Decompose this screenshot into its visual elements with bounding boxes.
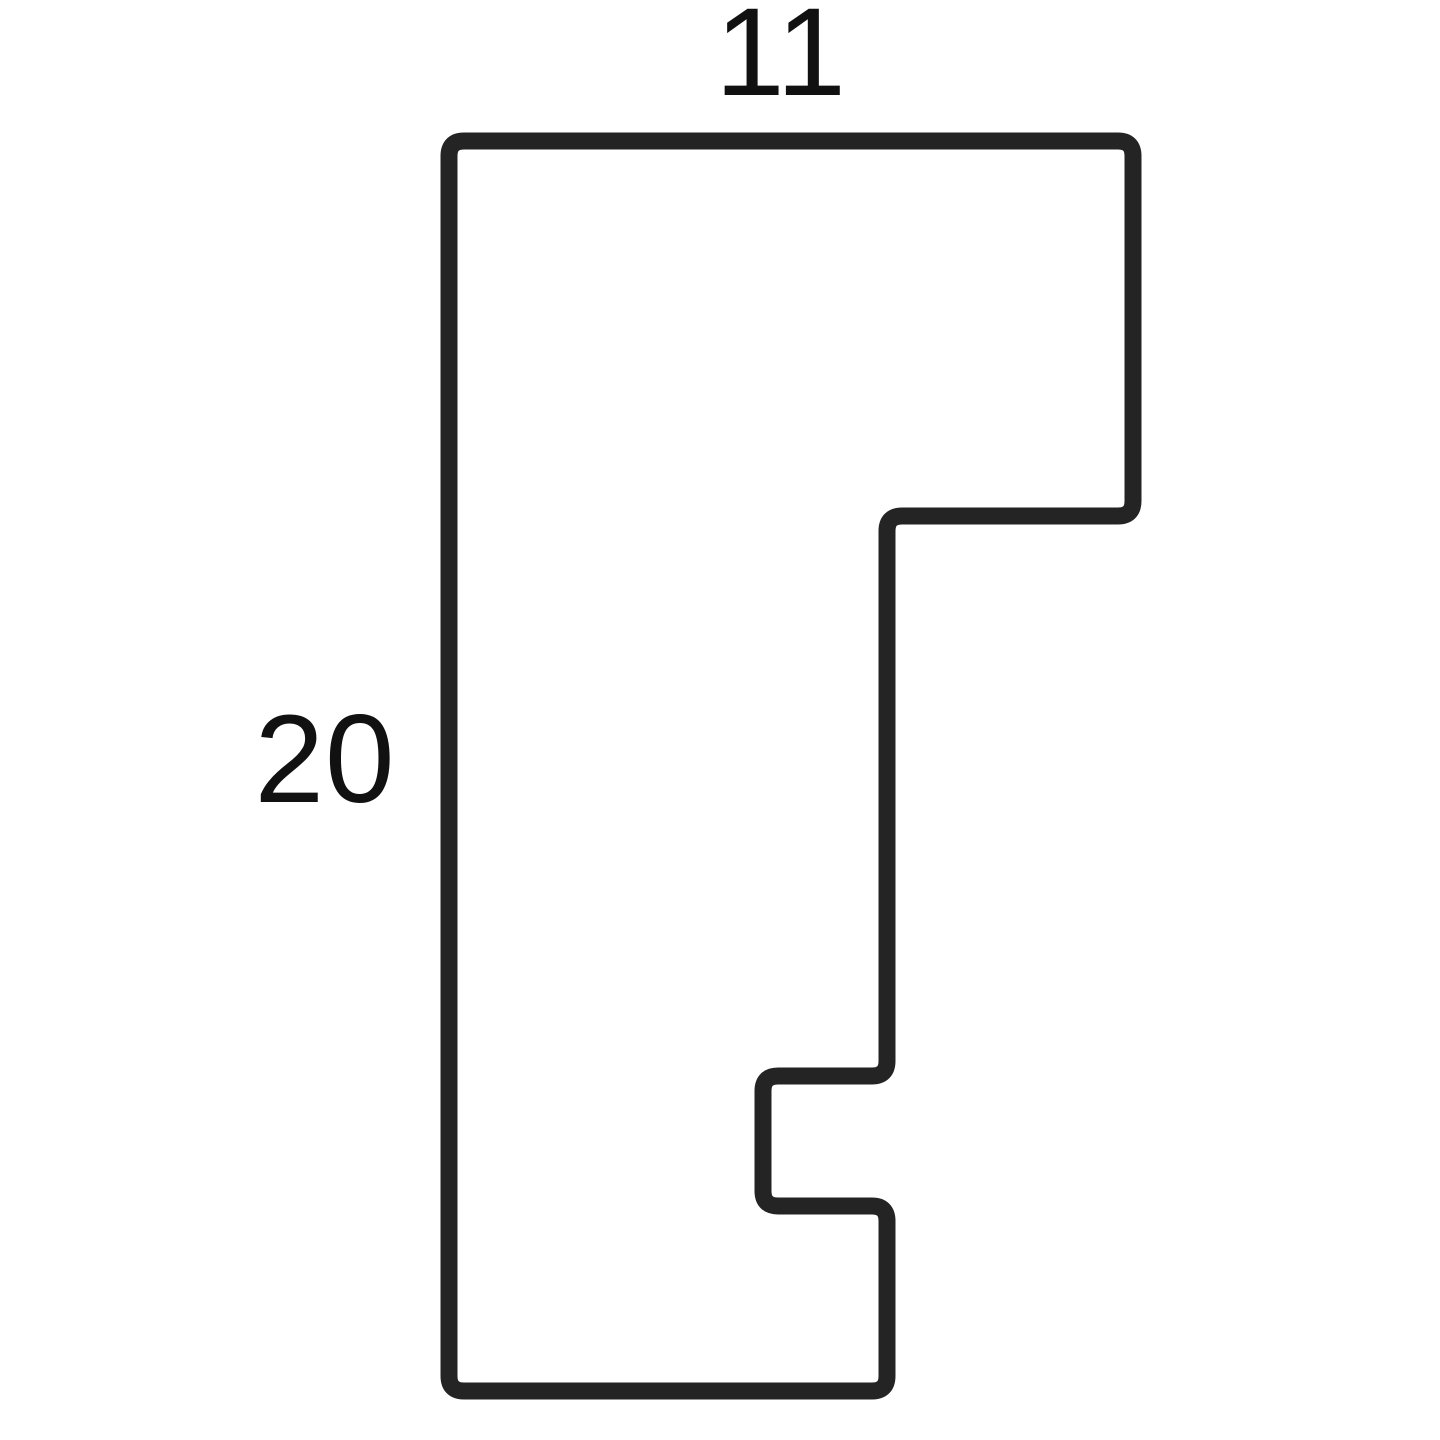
width-dimension-label: 11: [715, 0, 847, 122]
moulding-profile-outline: [449, 141, 1133, 1391]
diagram-canvas: 11 20: [0, 0, 1440, 1440]
height-dimension-label: 20: [254, 690, 395, 829]
profile-drawing: 11 20: [0, 0, 1440, 1440]
